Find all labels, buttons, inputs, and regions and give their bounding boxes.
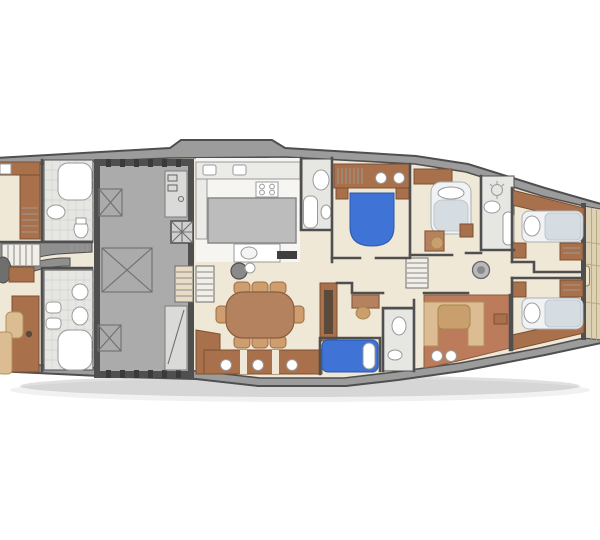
sofa-cushion bbox=[438, 305, 470, 329]
side-table bbox=[0, 164, 11, 174]
bed-icon bbox=[322, 340, 378, 372]
shower-icon bbox=[58, 163, 92, 200]
chair-icon bbox=[431, 237, 443, 249]
bow-cabinet bbox=[9, 267, 34, 282]
day-head bbox=[302, 159, 332, 230]
galley bbox=[196, 158, 300, 262]
nightstand bbox=[512, 282, 526, 297]
round-table-icon bbox=[473, 262, 490, 279]
porthole-icon bbox=[432, 351, 443, 362]
toilet-icon bbox=[72, 307, 88, 325]
wardrobe bbox=[20, 175, 40, 239]
porthole-icon bbox=[287, 360, 298, 371]
shower-icon bbox=[58, 330, 92, 370]
counter bbox=[196, 179, 207, 239]
pillow bbox=[376, 173, 387, 184]
porthole-icon bbox=[221, 360, 232, 371]
bed-icon bbox=[522, 211, 583, 242]
porthole-icon bbox=[253, 360, 264, 371]
ensuite-bathroom bbox=[481, 176, 514, 250]
stove-icon bbox=[256, 182, 278, 197]
engine-room bbox=[94, 159, 194, 378]
forward-bathroom-starboard bbox=[44, 270, 93, 370]
bench bbox=[46, 302, 61, 313]
sink-icon bbox=[241, 247, 257, 259]
sink-icon bbox=[484, 201, 500, 213]
chair-icon bbox=[356, 307, 370, 319]
dresser bbox=[560, 280, 583, 297]
sink-icon bbox=[72, 284, 88, 300]
bar-top bbox=[277, 251, 297, 259]
cabinet bbox=[494, 314, 507, 324]
sink-icon bbox=[203, 165, 216, 175]
galley-island bbox=[208, 198, 296, 243]
toilet-icon bbox=[313, 170, 329, 190]
toilet-icon bbox=[392, 317, 406, 335]
porthole-icon bbox=[446, 351, 457, 362]
bathtub-icon bbox=[304, 196, 318, 228]
chaise bbox=[0, 332, 12, 374]
floor-plan-canvas bbox=[0, 0, 600, 540]
bed-icon bbox=[350, 193, 394, 246]
sink-icon bbox=[388, 350, 402, 360]
dresser bbox=[560, 243, 583, 260]
nightstand bbox=[336, 188, 348, 199]
sink-icon bbox=[321, 205, 331, 219]
lower-bathroom bbox=[383, 309, 414, 371]
bench bbox=[46, 318, 61, 329]
forward-bathroom-port bbox=[44, 160, 93, 241]
pillow bbox=[394, 173, 405, 184]
desk bbox=[352, 295, 379, 308]
bed-icon bbox=[522, 298, 583, 329]
escape-hatch-icon bbox=[171, 221, 193, 243]
nightstand bbox=[396, 188, 409, 199]
sink-icon bbox=[47, 205, 65, 219]
nightstand bbox=[460, 224, 473, 237]
floor-plan-page bbox=[0, 0, 600, 540]
sink-icon bbox=[233, 165, 246, 175]
